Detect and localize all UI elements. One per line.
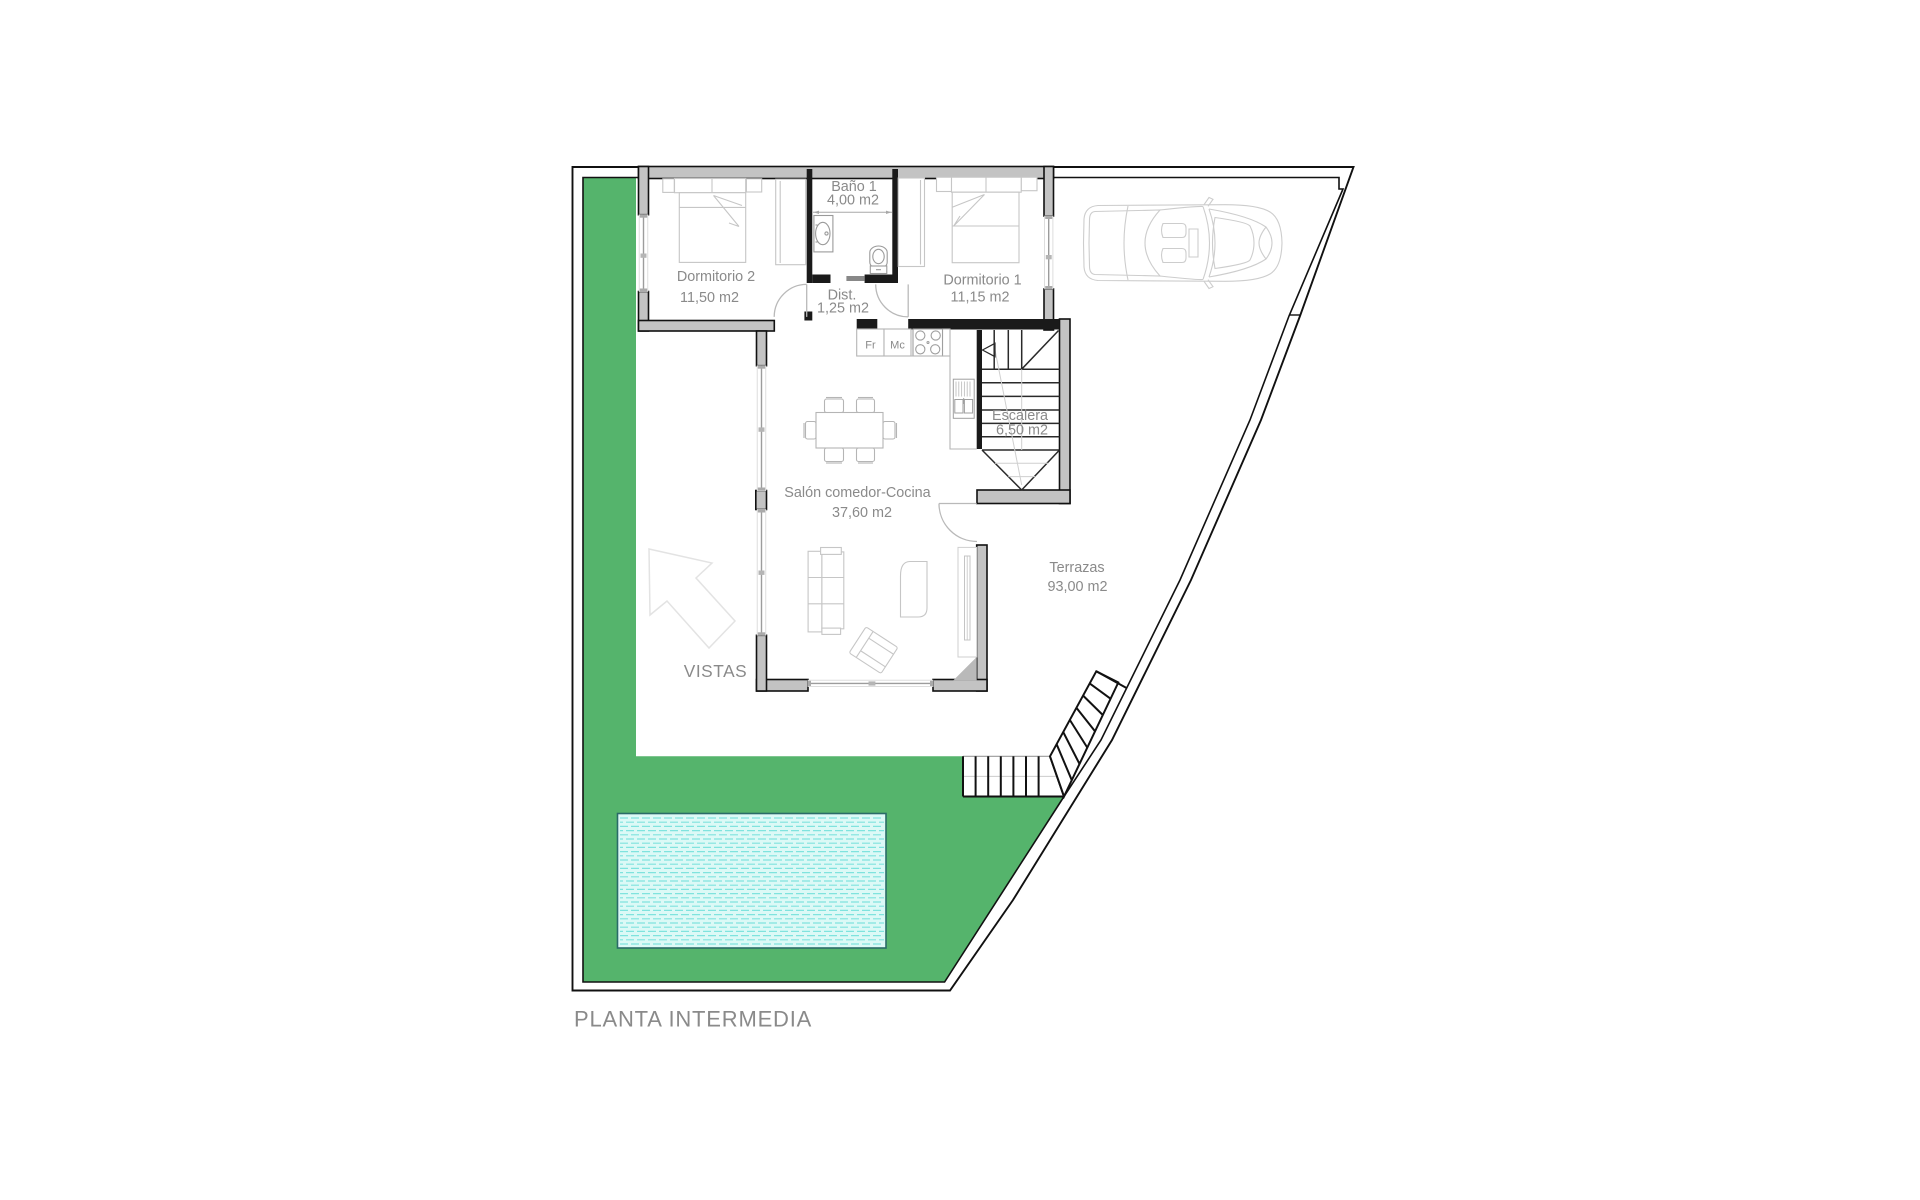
svg-text:Terrazas: Terrazas [1049, 560, 1104, 576]
svg-text:VISTAS: VISTAS [684, 661, 747, 681]
svg-text:11,15 m2: 11,15 m2 [951, 290, 1010, 306]
svg-text:Dormitorio 1: Dormitorio 1 [943, 273, 1021, 289]
svg-text:93,00 m2: 93,00 m2 [1047, 579, 1107, 595]
svg-text:Mc: Mc [890, 340, 905, 352]
svg-text:PLANTA INTERMEDIA: PLANTA INTERMEDIA [574, 1007, 812, 1032]
svg-text:11,50 m2: 11,50 m2 [680, 290, 739, 306]
svg-text:Salón comedor-Cocina: Salón comedor-Cocina [784, 485, 930, 501]
svg-text:1,25 m2: 1,25 m2 [817, 301, 869, 317]
svg-text:37,60 m2: 37,60 m2 [832, 505, 892, 521]
svg-text:Fr: Fr [865, 340, 876, 352]
svg-text:Dormitorio 2: Dormitorio 2 [677, 269, 755, 285]
svg-text:4,00 m2: 4,00 m2 [827, 193, 879, 209]
svg-text:6,50 m2: 6,50 m2 [996, 423, 1048, 439]
